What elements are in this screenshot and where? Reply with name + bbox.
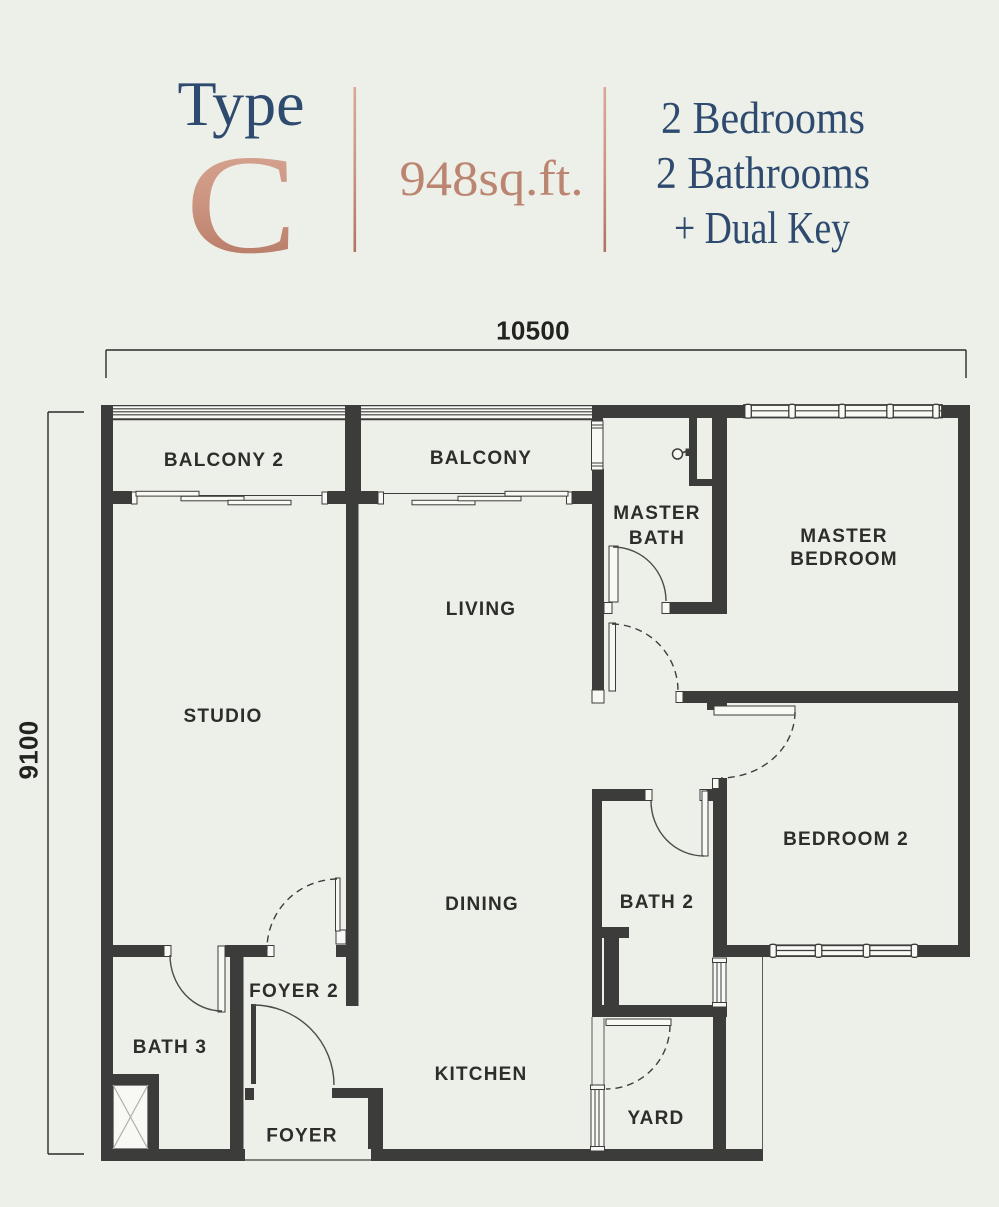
svg-text:YARD: YARD [628, 1108, 685, 1129]
svg-text:MASTER: MASTER [800, 526, 887, 547]
svg-text:FOYER 2: FOYER 2 [249, 981, 339, 1002]
svg-text:MASTER: MASTER [613, 503, 700, 524]
svg-text:KITCHEN: KITCHEN [435, 1064, 528, 1085]
svg-text:10500: 10500 [496, 316, 570, 346]
svg-text:+ Dual Key: + Dual Key [674, 203, 850, 253]
svg-text:BATH 2: BATH 2 [620, 892, 694, 913]
svg-text:BEDROOM 2: BEDROOM 2 [783, 829, 909, 850]
svg-text:2 Bathrooms: 2 Bathrooms [656, 148, 870, 198]
svg-text:LIVING: LIVING [446, 599, 517, 620]
svg-text:STUDIO: STUDIO [184, 706, 263, 727]
svg-text:BALCONY 2: BALCONY 2 [164, 450, 284, 471]
svg-text:BALCONY: BALCONY [430, 448, 532, 469]
svg-text:BEDROOM: BEDROOM [790, 549, 898, 570]
svg-text:2 Bedrooms: 2 Bedrooms [661, 93, 865, 143]
svg-text:FOYER: FOYER [266, 1126, 337, 1147]
svg-text:C: C [185, 125, 297, 283]
svg-text:9100: 9100 [14, 720, 44, 779]
svg-text:BATH: BATH [629, 528, 685, 549]
svg-text:948sq.ft.: 948sq.ft. [400, 150, 584, 206]
svg-text:BATH 3: BATH 3 [133, 1037, 207, 1058]
svg-text:DINING: DINING [445, 894, 519, 915]
